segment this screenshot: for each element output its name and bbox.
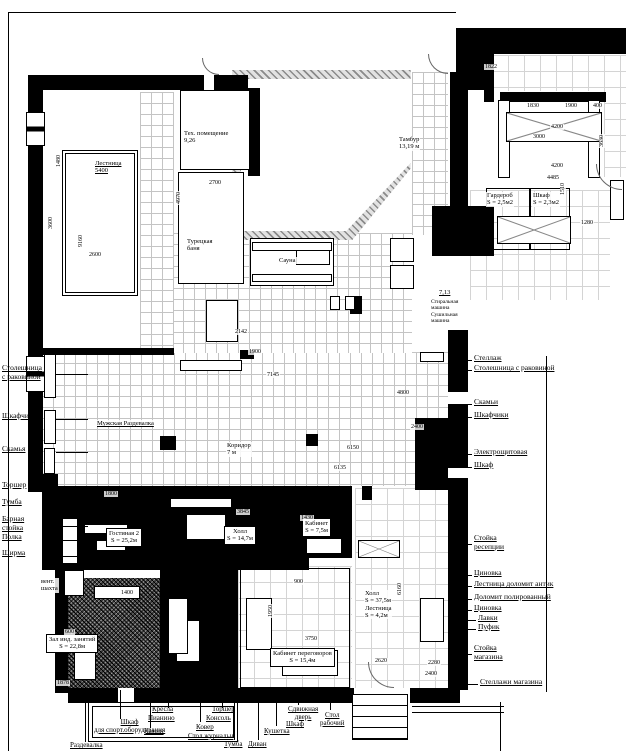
annotation-right: Стойка ресепции <box>474 534 624 551</box>
shower <box>390 265 414 289</box>
reception-desk <box>358 540 400 558</box>
pool <box>62 150 138 296</box>
wall <box>456 28 626 54</box>
bathtub <box>296 250 330 265</box>
entrance-stairs <box>352 694 408 740</box>
terrace-line <box>412 706 504 707</box>
table <box>282 650 338 676</box>
equipment <box>168 598 188 654</box>
room-label: 7,13 <box>438 289 451 296</box>
annotation-right: Стеллаж <box>474 354 624 363</box>
wall <box>448 330 468 690</box>
door-arc <box>428 54 448 74</box>
door-gap <box>448 392 468 404</box>
crossed-wardrobe <box>497 216 571 244</box>
courtyard-void <box>241 79 411 231</box>
bar-counter <box>84 524 128 534</box>
gym-equipment <box>74 638 96 680</box>
door-arc <box>596 164 622 190</box>
annotation-right: Стеллажи магазина <box>480 678 626 687</box>
annotation-bottom: Раздевалка <box>70 742 103 750</box>
wall <box>456 54 490 90</box>
wardrobe <box>170 498 232 508</box>
frame-line <box>8 12 9 751</box>
wall-column <box>205 566 237 578</box>
tiled-floor-reception <box>355 488 448 688</box>
annotation-right: Лестница доломит антик <box>474 580 624 589</box>
furniture-counter <box>44 354 56 398</box>
annotation-right: Электрощитовая <box>474 448 624 457</box>
annotation-bottom: Тумба <box>224 741 242 749</box>
massage-table <box>206 300 238 342</box>
window <box>26 356 45 392</box>
door-arc <box>202 58 219 75</box>
leader-line <box>546 356 547 692</box>
wall <box>214 75 248 90</box>
annotation-bottom: Кушетка <box>264 728 290 736</box>
wall-column <box>306 434 318 446</box>
wall <box>28 75 204 90</box>
annotation-bottom: Стол рабочий <box>320 712 345 728</box>
shelf <box>62 518 78 564</box>
annotation-right: Шкаф <box>474 461 624 470</box>
annotation-right: Доломит полированный <box>474 593 624 602</box>
annotation-right: Циновка <box>474 569 624 578</box>
shower <box>390 238 414 262</box>
piano <box>186 514 226 540</box>
wall <box>432 206 494 256</box>
terrace-inner <box>92 706 234 738</box>
gym-bench <box>94 586 140 599</box>
wall <box>42 348 174 355</box>
tiled-floor <box>42 352 448 486</box>
toilet <box>330 296 340 310</box>
tiled-floor <box>492 55 604 91</box>
door-gap <box>448 468 468 478</box>
annotation-right: Стойка магазина <box>474 644 624 661</box>
annotation-right: Столешница с раковиной <box>474 364 624 373</box>
wall <box>28 90 43 492</box>
sauna-bench <box>252 274 332 282</box>
annotation-right: Пуфик <box>478 623 626 632</box>
annotation-right: Лавки <box>478 614 626 623</box>
cabinet <box>96 540 126 551</box>
crossed-wardrobe <box>506 112 602 142</box>
dimension-text: 4200 <box>550 163 564 169</box>
furniture-bench <box>44 448 55 474</box>
leader-line <box>85 702 86 742</box>
annotation-right: Шкафчики <box>474 411 624 420</box>
annotation-bottom: Диван <box>248 741 267 749</box>
terrace-line <box>500 702 501 751</box>
annotation-bottom: Сдвижная дверь <box>288 706 318 722</box>
room-tech <box>180 90 250 170</box>
annotation-right: Циновка <box>474 604 624 613</box>
armchair <box>64 570 84 596</box>
wall <box>410 688 460 703</box>
wall-column <box>160 436 176 450</box>
frame-line <box>8 12 456 13</box>
toilet <box>345 296 355 310</box>
wall-column <box>240 350 254 359</box>
tiled-floor <box>140 92 174 350</box>
desk <box>306 538 342 554</box>
bench <box>420 598 444 642</box>
wall <box>68 688 290 703</box>
dimension-text: 3600 <box>48 216 54 230</box>
bench <box>420 352 444 362</box>
wall <box>42 474 58 492</box>
dimension-text: 4485 <box>546 175 560 181</box>
annotation-bottom: Шкаф <box>286 721 304 729</box>
couch <box>246 598 272 650</box>
washbasin-counter <box>180 360 242 371</box>
tiled-floor <box>604 55 626 177</box>
room-label: Сушильная машина <box>430 312 459 324</box>
furniture-lockers <box>44 410 56 444</box>
dimension-text: 1900 <box>564 103 578 109</box>
room-label: Стиральная машина <box>430 299 459 311</box>
wall-column <box>362 486 372 500</box>
door-gap <box>118 688 134 703</box>
annotation-right: Скамьи <box>474 398 624 407</box>
dimension-text: 1830 <box>526 103 540 109</box>
room-turkish-bath <box>178 172 244 284</box>
wall <box>288 688 354 703</box>
terrace-line <box>412 712 504 713</box>
floor-plan: Тех. помещение 9,26Турецкая баняСаунаЛес… <box>0 0 626 751</box>
window <box>26 112 45 146</box>
